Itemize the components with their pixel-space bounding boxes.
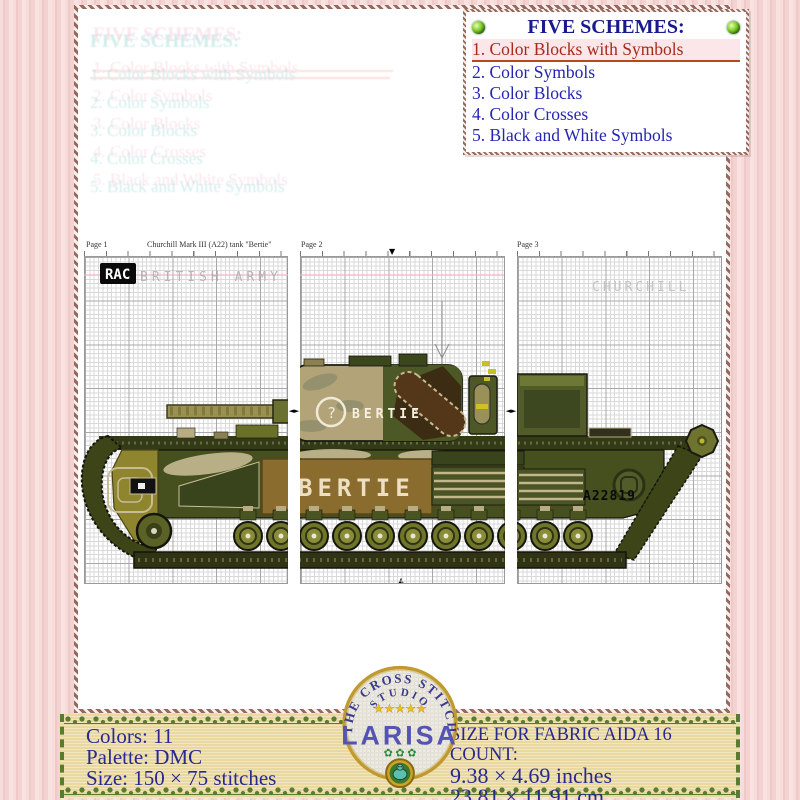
ghost-line: 1. Color Blocks with Symbols bbox=[90, 65, 490, 93]
ghost-title: FIVE SCHEMES: bbox=[93, 24, 493, 46]
fabric-heading: SIZE FOR FABRIC AIDA 16 COUNT: bbox=[450, 725, 722, 765]
scheme-item-5: 5. Black and White Symbols bbox=[472, 125, 740, 146]
scheme-item-1: 1. Color Blocks with Symbols bbox=[472, 39, 740, 62]
exhaust bbox=[589, 428, 631, 437]
schemes-title-row: FIVE SCHEMES: bbox=[472, 16, 740, 39]
pin-icon bbox=[472, 21, 485, 34]
engine-intake bbox=[517, 374, 587, 436]
tank-chart: RAC BRITISH ARMY CHURCHILL bbox=[78, 256, 730, 586]
chart-title: Churchill Mark III (A22) tank "Bertie" bbox=[147, 240, 272, 249]
page1-label: Page 1 bbox=[86, 240, 108, 249]
turret: ? BERTIE bbox=[293, 354, 496, 442]
schemes-panel: FIVE SCHEMES: 1. Color Blocks with Symbo… bbox=[463, 9, 749, 155]
ghost-line: 5. Black and White Symbols bbox=[93, 170, 493, 198]
ghost-line: 1. Color Blocks with Symbols bbox=[93, 58, 493, 86]
ghost-line: 3. Color Blocks bbox=[90, 121, 490, 149]
pattern-info: Colors: 11 Palette: DMC Size: 150 × 75 s… bbox=[86, 726, 276, 789]
page-gap-1: ◄► bbox=[288, 255, 300, 587]
ghost-underline bbox=[93, 70, 393, 72]
turret-name: BERTIE bbox=[352, 407, 423, 422]
stars-icon: ★★★★★ bbox=[373, 702, 426, 716]
scheme-item-2: 2. Color Symbols bbox=[472, 62, 740, 83]
scheme-item-4: 4. Color Crosses bbox=[472, 104, 740, 125]
turtle-emblem-icon bbox=[386, 759, 414, 787]
ghost-underline bbox=[90, 77, 390, 79]
product-image: { "schemes": { "title": "FIVE SCHEMES:",… bbox=[0, 0, 800, 800]
ghost-line: 5. Black and White Symbols bbox=[90, 177, 490, 205]
smoke-discharger bbox=[469, 376, 497, 434]
center-marker-side-icon: ◄► bbox=[505, 407, 517, 415]
page3-label: Page 3 bbox=[517, 240, 539, 249]
antenna bbox=[435, 301, 449, 364]
serial-text: A22819 bbox=[583, 489, 636, 504]
british-army-text: BRITISH ARMY bbox=[140, 270, 282, 285]
palette: Palette: DMC bbox=[86, 747, 276, 768]
ghost-line: 4. Color Crosses bbox=[93, 142, 493, 170]
ghost-line: 4. Color Crosses bbox=[90, 149, 490, 177]
ghost-title: FIVE SCHEMES: bbox=[90, 31, 490, 53]
pattern-page: FIVE SCHEMES: 1. Color Blocks with Symbo… bbox=[74, 5, 730, 713]
fabric-size-info: SIZE FOR FABRIC AIDA 16 COUNT: 9.38 × 4.… bbox=[450, 725, 722, 800]
ghost-line: 2. Color Symbols bbox=[90, 93, 490, 121]
hull-name: BERTIE bbox=[298, 474, 415, 502]
stitch-size: Size: 150 × 75 stitches bbox=[86, 768, 276, 789]
logo-name: LARISA bbox=[341, 720, 459, 750]
center-marker-side-icon: ◄► bbox=[288, 407, 300, 415]
studio-logo: THE CROSS STITCH STUDIO ★★★★★ LARISA ✿ ✿… bbox=[326, 653, 474, 800]
colors-count: Colors: 11 bbox=[86, 726, 276, 747]
schemes-title: FIVE SCHEMES: bbox=[527, 16, 684, 39]
scheme-item-3: 3. Color Blocks bbox=[472, 83, 740, 104]
floral-motif-icon: ✿ ✿ ✿ bbox=[384, 747, 417, 759]
ghost-copy-teal: FIVE SCHEMES: 1. Color Blocks with Symbo… bbox=[90, 31, 490, 205]
page-gap-2: ◄► bbox=[505, 255, 517, 587]
page2-label: Page 2 bbox=[301, 240, 323, 249]
ghost-line: 2. Color Symbols bbox=[93, 86, 493, 114]
churchill-text: CHURCHILL bbox=[592, 280, 689, 295]
ghost-copy-pink: FIVE SCHEMES: 1. Color Blocks with Symbo… bbox=[93, 24, 493, 198]
idler-wheel bbox=[686, 425, 718, 457]
gun-barrel bbox=[167, 400, 297, 423]
ghost-line: 3. Color Blocks bbox=[93, 114, 493, 142]
size-cm: 23.81 × 11.91 cm bbox=[450, 786, 722, 800]
pin-icon bbox=[727, 21, 740, 34]
squadron-symbol: ? bbox=[327, 404, 336, 422]
size-inches: 9.38 × 4.69 inches bbox=[450, 765, 722, 786]
rac-text: RAC bbox=[105, 267, 130, 283]
